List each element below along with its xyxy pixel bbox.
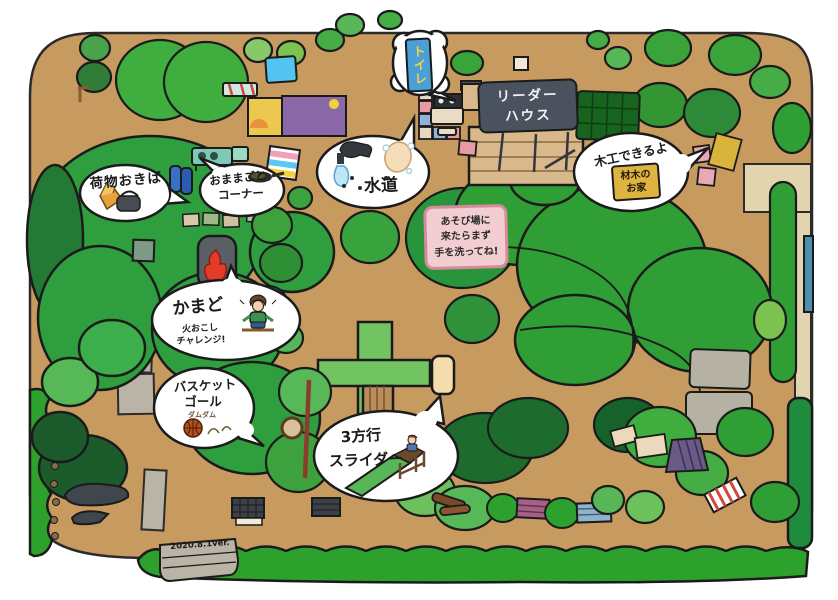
lumber-house-sign: 材木の お家: [611, 162, 661, 201]
slider-label-line2: スライダー: [320, 450, 413, 470]
tree-column-right: [770, 182, 796, 382]
blue-tarp: [265, 56, 297, 83]
basketball-sfx: ダムダム: [178, 411, 226, 419]
platform-square: [133, 240, 155, 262]
leader-house-line1: リーダー: [496, 85, 559, 107]
blue-gate: [804, 236, 813, 312]
playground-map: 荷物おきば おままごと コーナー 水道 トイレ 木工できるよ 材木の お家 リー…: [0, 0, 838, 600]
basketball-label-line2: ゴール: [170, 395, 236, 409]
wash-hands-line3: 手を洗ってね!: [434, 244, 498, 261]
water-label: 水道: [352, 176, 411, 198]
lumber-sign-line2: お家: [626, 181, 647, 195]
leader-house-line2: ハウス: [505, 105, 552, 127]
wash-hands-line2: 来たらまず: [441, 229, 491, 246]
toilet-sign: トイレ: [405, 37, 434, 92]
wash-hands-sign: あそび場に 来たらまず 手を洗ってね!: [423, 204, 509, 270]
leader-house-sign: リーダー ハウス: [477, 78, 579, 133]
wash-hands-line1: あそび場に: [440, 213, 490, 230]
striped-bench-top: [223, 83, 257, 96]
hedge-right: [788, 398, 812, 548]
mural: [248, 96, 346, 136]
toilet-label: トイレ: [408, 44, 429, 85]
beige-square: [514, 57, 528, 70]
lumber-sign-line1: 材木の: [620, 168, 651, 183]
